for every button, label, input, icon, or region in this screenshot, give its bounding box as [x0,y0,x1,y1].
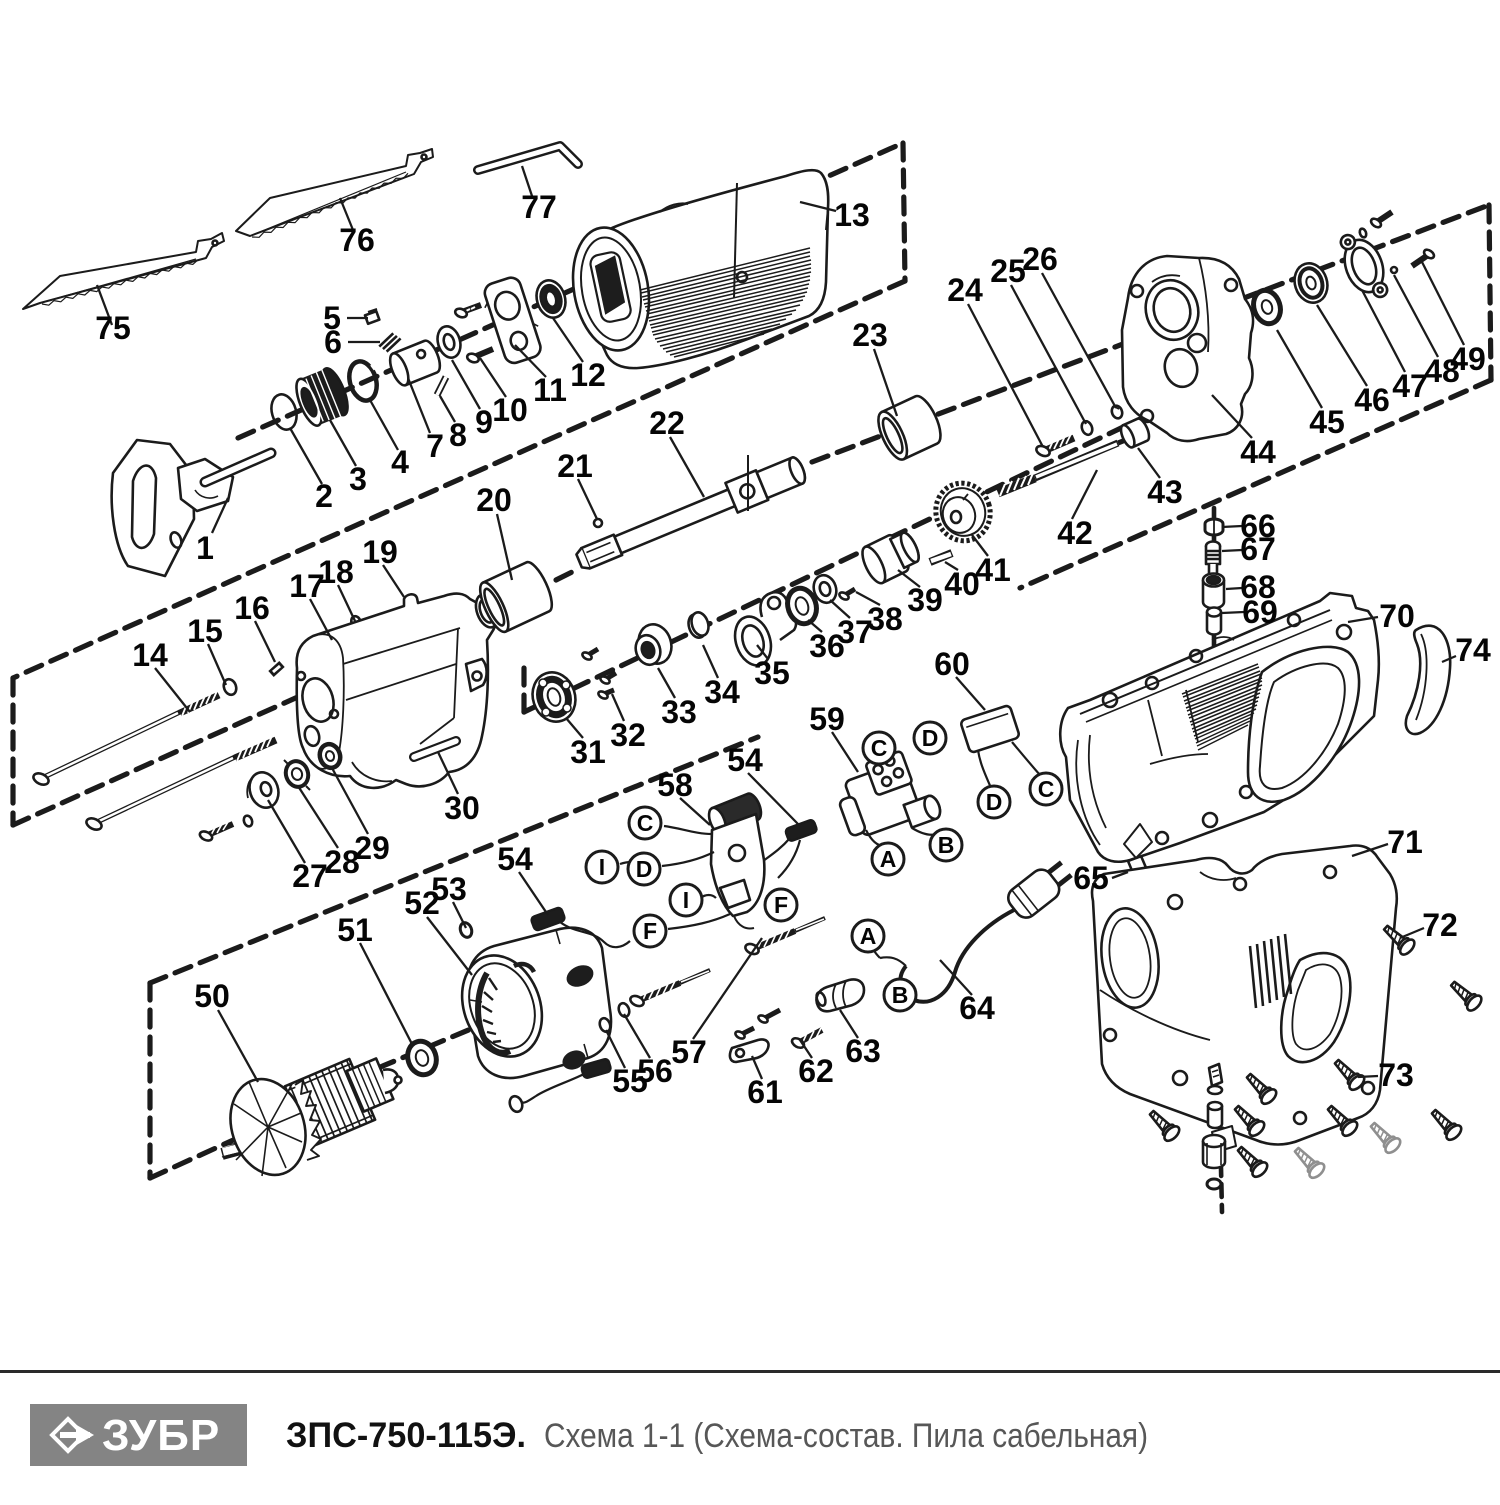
svg-text:25: 25 [990,253,1026,289]
svg-text:72: 72 [1422,907,1458,943]
svg-text:53: 53 [431,871,467,907]
svg-text:44: 44 [1240,434,1276,470]
svg-text:54: 54 [497,841,533,877]
svg-text:18: 18 [318,554,354,590]
svg-text:65: 65 [1073,860,1109,896]
svg-text:13: 13 [834,197,870,233]
svg-text:42: 42 [1057,515,1093,551]
svg-text:49: 49 [1450,341,1486,377]
svg-text:64: 64 [959,990,995,1026]
svg-text:B: B [892,982,909,1008]
svg-text:Схема 1-1 (Схема-состав. Пила: Схема 1-1 (Схема-состав. Пила сабельная) [544,1417,1148,1455]
svg-text:31: 31 [570,734,606,770]
svg-text:ЗПС-750-115Э.: ЗПС-750-115Э. [286,1416,526,1455]
svg-text:63: 63 [845,1033,881,1069]
svg-text:D: D [636,856,653,882]
svg-text:47: 47 [1392,368,1428,404]
svg-text:38: 38 [867,601,903,637]
svg-text:3: 3 [349,461,367,497]
svg-text:50: 50 [194,978,230,1014]
svg-text:B: B [938,832,955,858]
svg-text:75: 75 [95,310,131,346]
svg-text:74: 74 [1455,632,1491,668]
svg-text:61: 61 [747,1074,783,1110]
svg-text:60: 60 [934,646,970,682]
svg-text:20: 20 [476,482,512,518]
svg-text:77: 77 [521,189,557,225]
svg-text:15: 15 [187,613,223,649]
svg-text:27: 27 [292,858,328,894]
svg-text:14: 14 [132,637,168,673]
svg-text:41: 41 [975,552,1011,588]
svg-text:76: 76 [339,222,375,258]
svg-text:56: 56 [637,1053,673,1089]
svg-text:23: 23 [852,317,888,353]
svg-text:ЗУБР: ЗУБР [102,1411,220,1460]
svg-text:A: A [860,923,877,949]
svg-text:57: 57 [671,1034,707,1070]
svg-text:54: 54 [727,742,763,778]
svg-text:51: 51 [337,912,373,948]
svg-text:32: 32 [610,717,646,753]
svg-text:A: A [880,846,897,872]
svg-text:46: 46 [1354,382,1390,418]
svg-text:70: 70 [1379,598,1415,634]
svg-text:59: 59 [809,701,845,737]
svg-text:11: 11 [533,372,567,408]
svg-text:24: 24 [947,272,983,308]
svg-text:F: F [774,892,788,918]
svg-text:D: D [922,725,939,751]
svg-text:F: F [643,918,657,944]
svg-text:8: 8 [449,417,467,453]
svg-text:9: 9 [475,404,493,440]
svg-text:35: 35 [754,655,790,691]
svg-text:30: 30 [444,790,480,826]
svg-text:2: 2 [315,478,333,514]
svg-text:7: 7 [426,428,444,464]
svg-text:1: 1 [196,530,214,566]
svg-text:I: I [599,854,605,880]
svg-text:62: 62 [798,1053,834,1089]
svg-text:I: I [683,887,689,913]
svg-text:58: 58 [657,767,693,803]
svg-text:6: 6 [324,324,342,360]
svg-text:C: C [871,735,888,761]
svg-text:C: C [1038,776,1055,802]
svg-text:C: C [637,810,654,836]
svg-text:22: 22 [649,405,685,441]
svg-text:12: 12 [570,357,606,393]
svg-text:69: 69 [1242,594,1278,630]
svg-text:21: 21 [557,448,593,484]
svg-text:43: 43 [1147,474,1183,510]
svg-text:73: 73 [1378,1057,1414,1093]
svg-text:4: 4 [391,444,409,480]
svg-text:16: 16 [234,590,270,626]
svg-text:29: 29 [354,830,390,866]
svg-text:67: 67 [1240,531,1276,567]
svg-text:34: 34 [704,674,740,710]
svg-text:39: 39 [907,582,943,618]
svg-text:19: 19 [362,534,398,570]
svg-text:D: D [986,789,1003,815]
svg-text:26: 26 [1022,241,1058,277]
svg-text:10: 10 [492,392,528,428]
svg-text:71: 71 [1387,824,1423,860]
svg-text:33: 33 [661,694,697,730]
svg-text:45: 45 [1309,404,1345,440]
